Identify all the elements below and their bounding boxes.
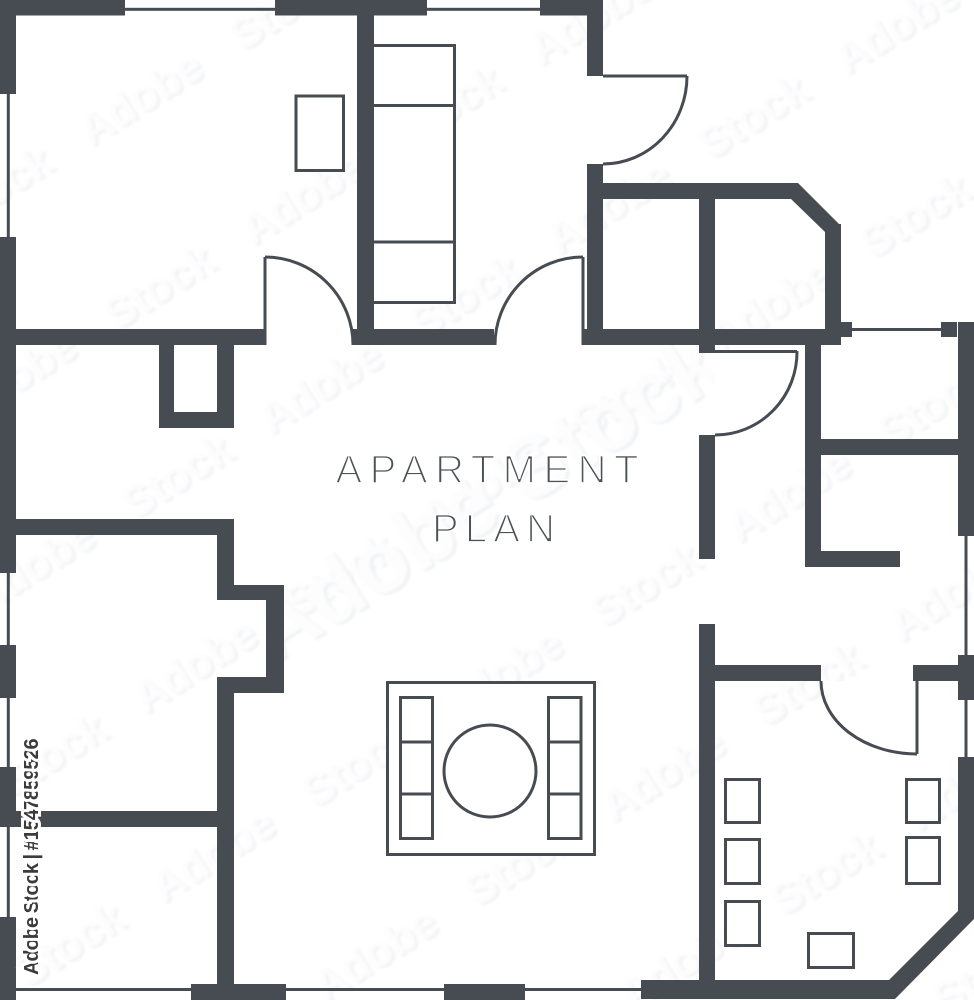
- svg-text:PLAN: PLAN: [432, 507, 555, 551]
- svg-text:APARTMENT: APARTMENT: [336, 448, 639, 492]
- svg-text:Adobe Stock | #1547859526: Adobe Stock | #1547859526: [21, 738, 43, 975]
